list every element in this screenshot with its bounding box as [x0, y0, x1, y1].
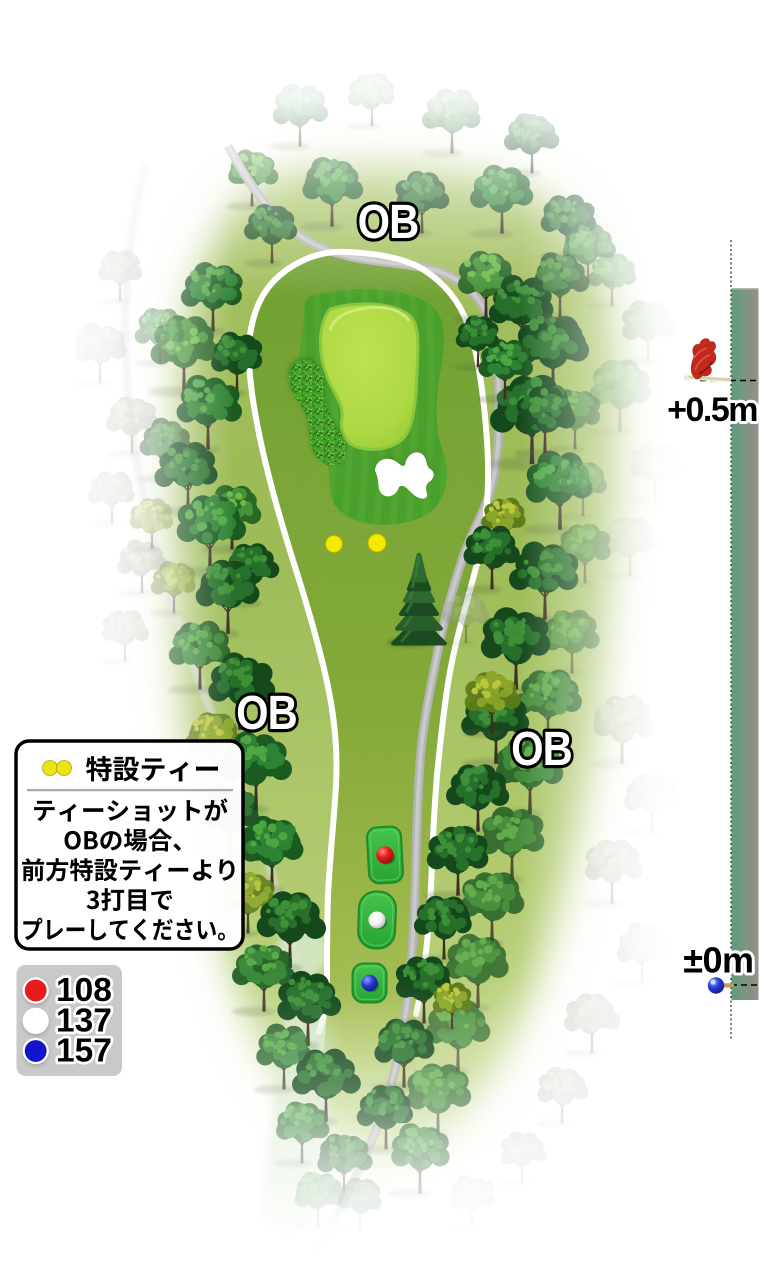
- svg-text:+0.5m: +0.5m: [667, 391, 757, 429]
- svg-text:OB: OB: [511, 721, 572, 776]
- svg-text:±0m: ±0m: [683, 940, 753, 981]
- svg-text:OB: OB: [358, 194, 419, 249]
- svg-text:157: 157: [56, 1033, 112, 1070]
- svg-text:OB: OB: [236, 685, 297, 740]
